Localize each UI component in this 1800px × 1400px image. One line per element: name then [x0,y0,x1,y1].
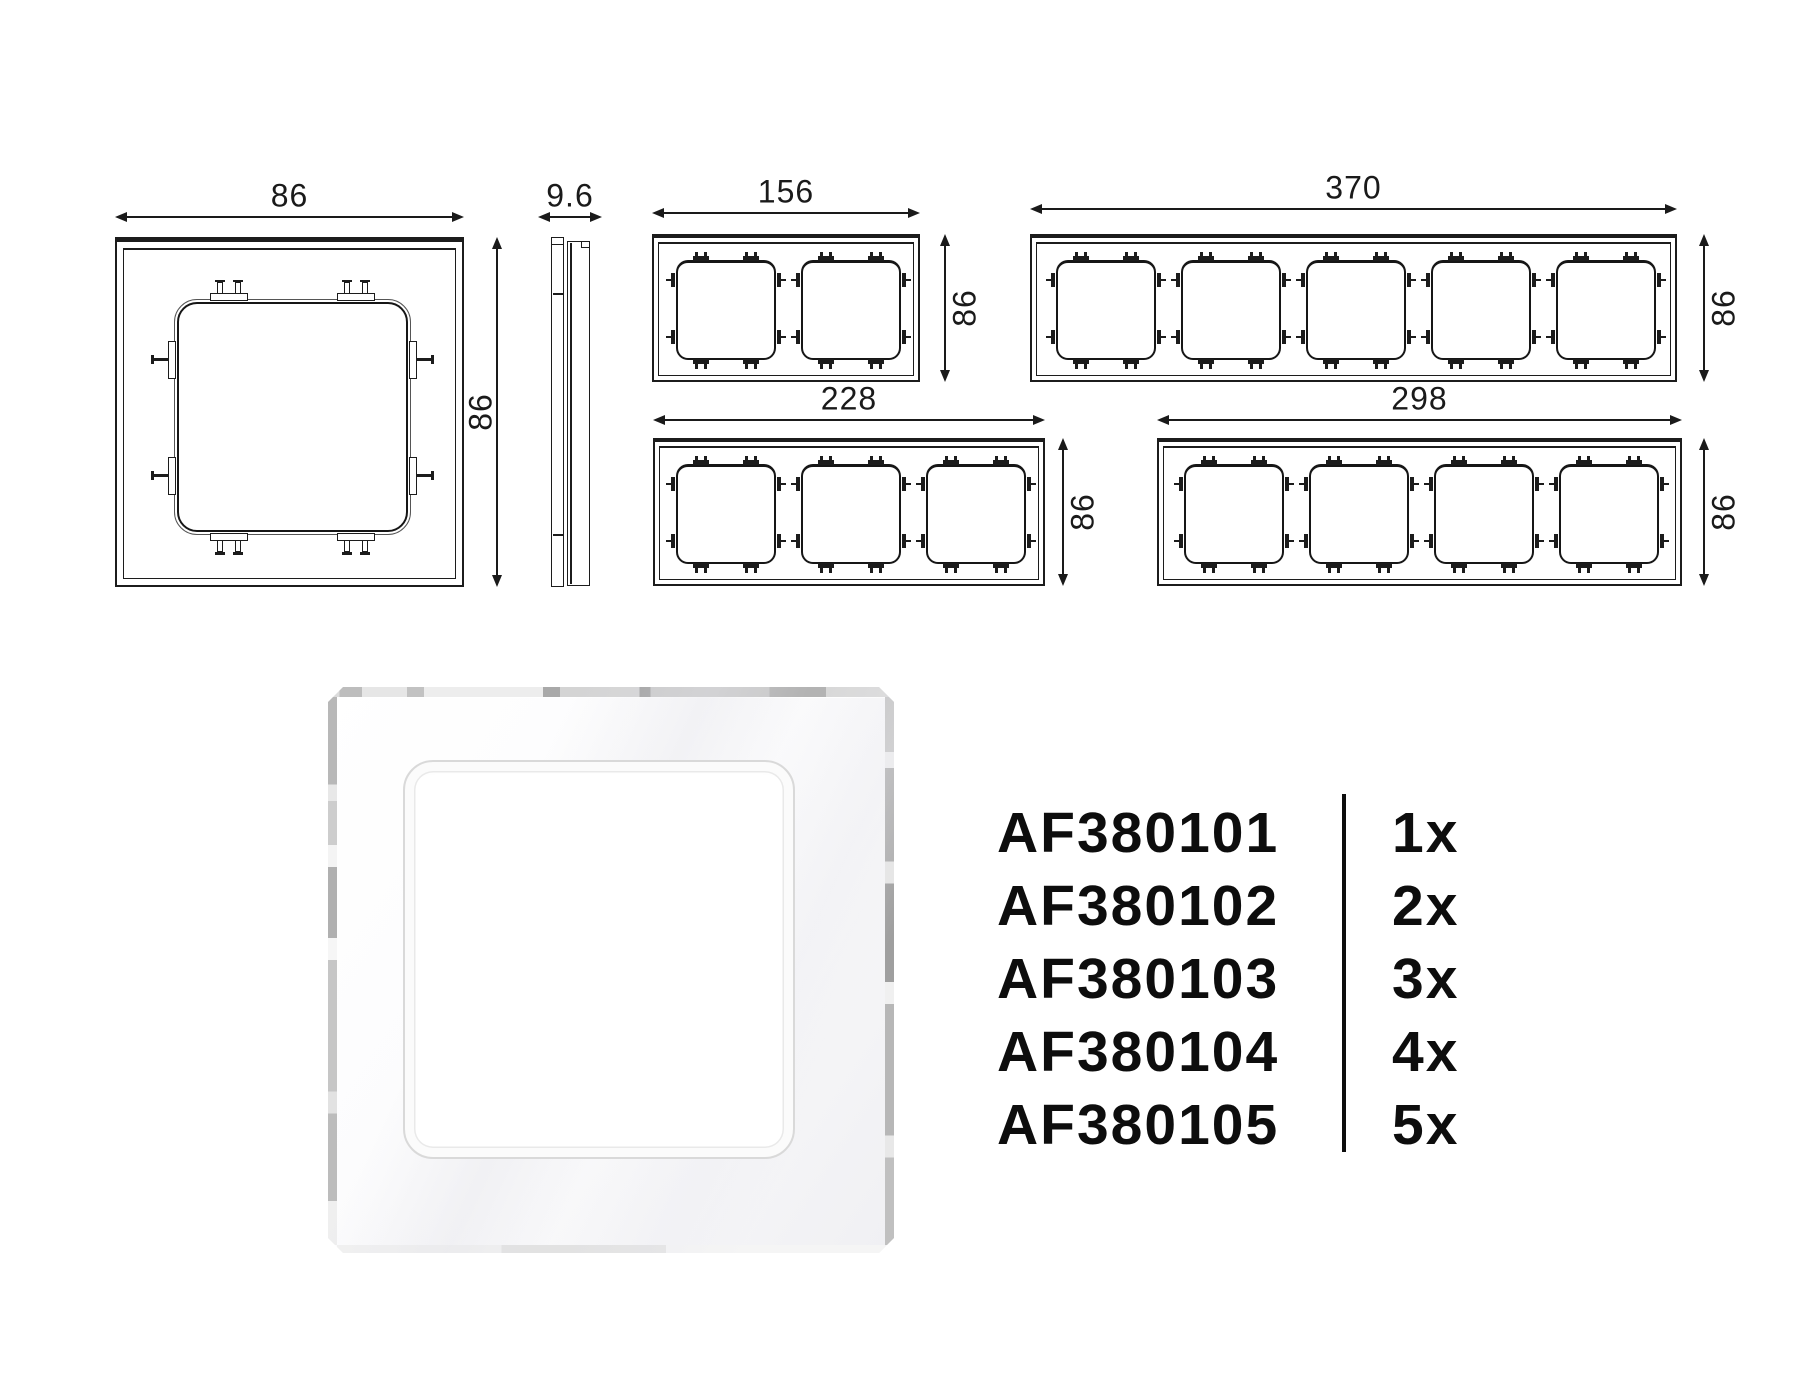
product-qty: 2x [1392,873,1459,939]
clip-mark [781,540,786,542]
clip-mark [829,456,832,461]
side-tick [553,534,563,536]
clip-mark [906,483,911,485]
clip-mark [1625,364,1628,369]
product-list-rows: AF3801011xAF3801022xAF3801033xAF3801044x… [997,796,1459,1161]
clip-mark [217,540,223,552]
dimension-arrow [1699,234,1709,246]
clip-mark [1253,568,1256,573]
clip-mark [1046,336,1051,338]
clip-mark [1209,364,1212,369]
clip-mark [1250,364,1253,369]
clip-mark [1578,568,1581,573]
clip-mark [337,533,375,541]
clip-mark [1134,364,1137,369]
clip-mark [1512,568,1515,573]
frame-window [1556,260,1656,360]
clip-mark [1453,456,1456,461]
clip-mark [344,540,350,552]
clip-mark [666,483,671,485]
clip-mark [1426,330,1430,344]
clip-mark [1551,330,1555,344]
dimension-label: 298 [1391,381,1447,418]
clip-mark [1450,364,1453,369]
clip-mark [1212,456,1215,461]
clip-mark [1421,279,1426,281]
clip-mark [1509,252,1512,257]
clip-mark [1337,456,1340,461]
clip-mark [1551,273,1555,287]
clip-mark [954,456,957,461]
product-code: AF380103 [997,946,1392,1012]
clip-mark [1259,252,1262,257]
clip-mark [1414,483,1419,485]
clip-mark [1387,456,1390,461]
side-inner-line [570,243,572,584]
dimension-label: 86 [1065,493,1102,531]
clip-mark [1334,364,1337,369]
clip-mark [704,364,707,369]
clip-mark [879,456,882,461]
clip-mark [1628,456,1631,461]
dimension-label: 86 [271,178,309,215]
clip-mark [1161,279,1166,281]
clip-mark [1462,456,1465,461]
clip-mark [1384,252,1387,257]
frame-window [801,464,901,564]
dimension-label: 86 [1706,289,1743,327]
frame-window [1184,464,1284,564]
drawing-front-4gang [1157,438,1682,586]
clip-mark [745,364,748,369]
clip-mark [754,456,757,461]
clip-mark [154,474,169,477]
clip-mark [1634,252,1637,257]
clip-mark [1289,540,1294,542]
clip-mark [791,279,796,281]
clip-mark [1084,364,1087,369]
clip-mark [829,568,832,573]
technical-drawings: 86869.615686370862288629886 [0,0,1800,1400]
clip-mark [1325,252,1328,257]
clip-mark [1286,336,1291,338]
clip-mark [796,273,800,287]
dimension-arrow [1058,574,1068,586]
product-code: AF380102 [997,873,1392,939]
clip-mark [1387,568,1390,573]
clip-mark [1262,456,1265,461]
clip-mark [1296,336,1301,338]
frame-window [1181,260,1281,360]
dimension-arrow [1699,370,1709,382]
clip-mark [1500,252,1503,257]
clip-mark [1414,540,1419,542]
clip-mark [431,355,434,364]
clip-mark [754,252,757,257]
clip-mark [1031,540,1036,542]
clip-mark [1453,568,1456,573]
clip-mark [870,252,873,257]
dimension-label: 86 [1706,493,1743,531]
clip-mark [1512,456,1515,461]
clip-mark [362,540,368,552]
clip-mark [829,252,832,257]
clip-mark [791,336,796,338]
clip-mark [1424,483,1429,485]
clip-mark [1179,534,1183,548]
clip-mark [1421,336,1426,338]
dimension-label: 228 [821,381,877,418]
clip-mark [342,552,352,555]
clip-mark [906,540,911,542]
clip-mark [1334,252,1337,257]
clip-mark [1661,336,1666,338]
clip-mark [1171,336,1176,338]
product-qty: 4x [1392,1019,1459,1085]
frame-window [1309,464,1409,564]
clip-mark [1450,252,1453,257]
clip-mark [1299,483,1304,485]
clip-mark [945,568,948,573]
clip-mark [360,280,370,283]
dimension-arrow [1030,204,1042,214]
clip-mark [1375,364,1378,369]
clip-mark [1125,252,1128,257]
clip-mark [1459,364,1462,369]
clip-mark [671,534,675,548]
clip-mark [695,364,698,369]
dimension-arrow [1033,415,1045,425]
clip-mark [995,568,998,573]
catalog-sheet: 86869.615686370862288629886 AF3801011xAF… [0,0,1800,1400]
clip-mark [1500,364,1503,369]
clip-mark [791,483,796,485]
clip-mark [151,471,154,480]
dimension-arrow [1665,204,1677,214]
clip-mark [745,252,748,257]
clip-mark [233,280,243,283]
clip-mark [337,293,375,301]
product-code: AF380104 [997,1019,1392,1085]
dimension-line [662,212,910,214]
clip-mark [1625,252,1628,257]
clip-mark [820,252,823,257]
clip-mark [666,279,671,281]
frame-window [177,302,408,532]
clip-mark [1584,364,1587,369]
dimension-arrow [1699,574,1709,586]
clip-mark [1637,568,1640,573]
product-qty: 5x [1392,1092,1459,1158]
clip-mark [1051,273,1055,287]
clip-mark [1375,252,1378,257]
clip-mark [151,355,154,364]
drawing-front-5gang [1030,234,1677,382]
clip-mark [1301,330,1305,344]
clip-mark [1253,456,1256,461]
product-qty: 1x [1392,800,1459,866]
clip-mark [1637,456,1640,461]
clip-mark [1549,483,1554,485]
clip-mark [362,282,368,294]
list-item: AF3801022x [997,869,1459,942]
frame-window [801,260,901,360]
clip-mark [1429,534,1433,548]
clip-mark [1304,534,1308,548]
clip-mark [1536,336,1541,338]
clip-mark [1051,330,1055,344]
clip-mark [431,471,434,480]
clip-mark [215,280,225,283]
frame-window [676,464,776,564]
clip-mark [704,568,707,573]
clip-mark [1296,279,1301,281]
clip-mark [1328,568,1331,573]
clip-mark [870,456,873,461]
clip-mark [1004,456,1007,461]
clip-mark [1578,456,1581,461]
clip-mark [1634,364,1637,369]
clip-mark [1509,364,1512,369]
clip-mark [1203,456,1206,461]
clip-mark [879,252,882,257]
clip-mark [671,273,675,287]
clip-mark [829,364,832,369]
clip-mark [820,456,823,461]
clip-mark [1075,252,1078,257]
clip-mark [1503,456,1506,461]
clip-mark [1384,364,1387,369]
clip-mark [1664,540,1669,542]
clip-mark [1378,568,1381,573]
clip-mark [1176,330,1180,344]
clip-mark [906,279,911,281]
clip-mark [1459,252,1462,257]
clip-mark [820,364,823,369]
frame-window [1559,464,1659,564]
clip-mark [791,540,796,542]
clip-mark [1539,483,1544,485]
clip-mark [879,568,882,573]
dimension-line [663,419,1035,421]
clip-mark [1584,252,1587,257]
clip-mark [695,456,698,461]
product-code: AF380101 [997,800,1392,866]
clip-mark [217,282,223,294]
clip-mark [154,358,169,361]
clip-mark [1587,456,1590,461]
dimension-label: 86 [947,289,984,327]
clip-mark [796,534,800,548]
dimension-arrow [115,212,127,222]
drawing-front-1gang [115,237,464,587]
clip-mark [745,456,748,461]
clip-mark [695,568,698,573]
clip-mark [671,477,675,491]
clip-mark [1378,456,1381,461]
clip-mark [870,568,873,573]
dimension-arrow [1157,415,1169,425]
clip-mark [1301,273,1305,287]
clip-mark [416,358,431,361]
clip-mark [1424,540,1429,542]
dimension-line [125,216,454,218]
clip-mark [1209,252,1212,257]
side-tick [553,293,563,295]
clip-mark [666,336,671,338]
clip-mark [1161,336,1166,338]
dimension-arrow [492,575,502,587]
clip-mark [1549,540,1554,542]
clip-mark [1304,477,1308,491]
clip-mark [870,364,873,369]
clip-mark [1429,477,1433,491]
clip-mark [342,280,352,283]
clip-mark [1125,364,1128,369]
clip-mark [1587,568,1590,573]
dimension-label: 86 [463,393,500,431]
clip-mark [168,341,176,379]
clip-mark [796,477,800,491]
frame-window [1056,260,1156,360]
clip-mark [671,330,675,344]
clip-mark [1554,534,1558,548]
clip-mark [745,568,748,573]
clip-mark [1299,540,1304,542]
clip-mark [704,252,707,257]
clip-mark [1286,279,1291,281]
clip-mark [995,456,998,461]
dimension-arrow [452,212,464,222]
clip-mark [1539,540,1544,542]
glass-frame-photo [328,687,894,1253]
list-item: AF3801044x [997,1015,1459,1088]
frame-window [1306,260,1406,360]
clip-mark [781,336,786,338]
clip-mark [916,540,921,542]
clip-mark [1259,364,1262,369]
dimension-arrow [1699,438,1709,450]
clip-mark [906,336,911,338]
clip-mark [1262,568,1265,573]
clip-mark [1179,477,1183,491]
list-item: AF3801011x [997,796,1459,869]
frame-window [1434,464,1534,564]
clip-mark [344,282,350,294]
dimension-label: 370 [1325,170,1381,207]
list-item: AF3801055x [997,1088,1459,1161]
clip-mark [235,540,241,552]
clip-mark [921,477,925,491]
clip-mark [1004,568,1007,573]
dimension-label: 156 [758,174,814,211]
dimension-line [548,216,592,218]
clip-mark [1554,477,1558,491]
clip-mark [1174,483,1179,485]
clip-mark [210,533,248,541]
photo-window-opening [403,760,795,1159]
frame-window [676,260,776,360]
clip-mark [1171,279,1176,281]
clip-mark [1200,364,1203,369]
clip-mark [704,456,707,461]
clip-mark [1174,540,1179,542]
clip-mark [1046,279,1051,281]
product-list: AF3801011xAF3801022xAF3801033xAF3801044x… [997,796,1459,1161]
clip-mark [1575,252,1578,257]
clip-mark [945,456,948,461]
product-qty: 3x [1392,946,1459,1012]
clip-mark [168,457,176,495]
clip-mark [1462,568,1465,573]
clip-mark [1203,568,1206,573]
clip-mark [754,568,757,573]
clip-mark [820,568,823,573]
clip-mark [360,552,370,555]
clip-mark [1289,483,1294,485]
clip-mark [1176,273,1180,287]
list-divider [1342,794,1346,1152]
dimension-arrow [940,234,950,246]
clip-mark [879,364,882,369]
clip-mark [416,474,431,477]
clip-mark [1200,252,1203,257]
clip-mark [1084,252,1087,257]
clip-mark [1661,279,1666,281]
clip-mark [1075,364,1078,369]
clip-mark [954,568,957,573]
list-item: AF3801033x [997,942,1459,1015]
dimension-arrow [1058,438,1068,450]
dimension-line [1167,419,1672,421]
clip-mark [1134,252,1137,257]
dimension-arrow [908,208,920,218]
clip-mark [1575,364,1578,369]
clip-mark [754,364,757,369]
clip-mark [1426,273,1430,287]
clip-mark [1212,568,1215,573]
dimension-arrow [492,237,502,249]
dimension-arrow [653,415,665,425]
drawing-front-3gang [653,438,1045,586]
clip-mark [1411,336,1416,338]
clip-mark [1250,252,1253,257]
clip-mark [235,282,241,294]
clip-mark [695,252,698,257]
clip-mark [1325,364,1328,369]
dimension-arrow [652,208,664,218]
clip-mark [1536,279,1541,281]
clip-mark [233,552,243,555]
dimension-arrow [940,370,950,382]
clip-mark [921,534,925,548]
clip-mark [1503,568,1506,573]
clip-mark [1546,336,1551,338]
clip-mark [215,552,225,555]
clip-mark [796,330,800,344]
dimension-arrow [1670,415,1682,425]
drawing-front-2gang [652,234,920,382]
dimension-label: 9.6 [546,178,593,215]
clip-mark [1411,279,1416,281]
dimension-line [1040,208,1667,210]
clip-mark [210,293,248,301]
clip-mark [781,279,786,281]
clip-mark [1337,568,1340,573]
product-code: AF380105 [997,1092,1392,1158]
clip-mark [666,540,671,542]
clip-mark [916,483,921,485]
